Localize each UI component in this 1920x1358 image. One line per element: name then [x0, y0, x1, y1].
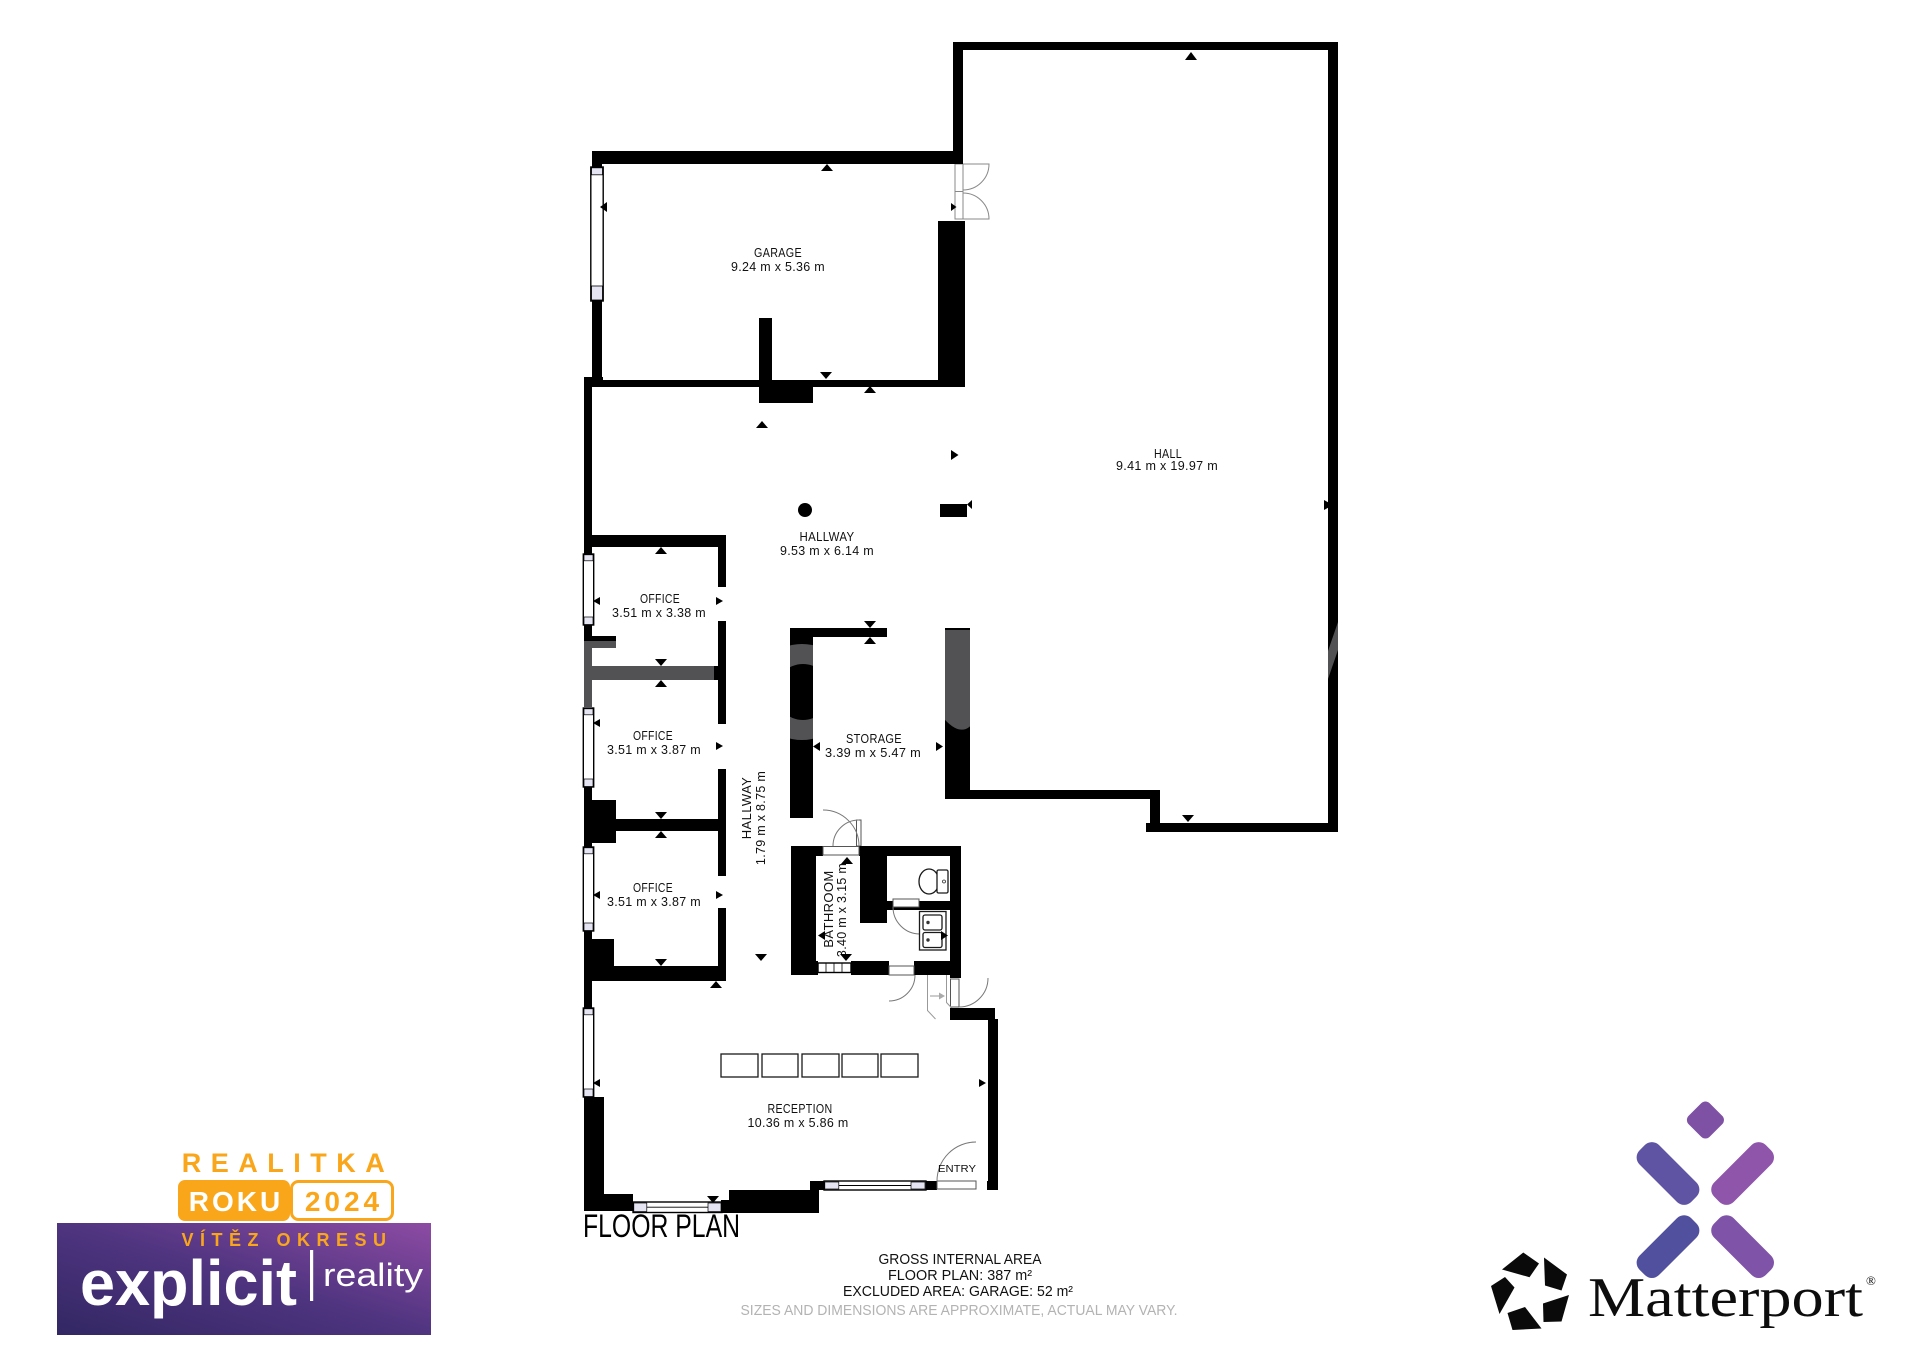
- svg-text:9.24 m x 5.36 m: 9.24 m x 5.36 m: [731, 260, 825, 274]
- svg-text:3.51 m x 3.87 m: 3.51 m x 3.87 m: [607, 743, 701, 757]
- svg-text:10.36 m x 5.86 m: 10.36 m x 5.86 m: [748, 1116, 849, 1130]
- svg-text:OFFICE: OFFICE: [640, 591, 680, 606]
- svg-text:HALLWAY: HALLWAY: [739, 777, 754, 840]
- svg-text:ENTRY: ENTRY: [938, 1163, 976, 1175]
- svg-text:®: ®: [1866, 1273, 1876, 1288]
- svg-text:OFFICE: OFFICE: [633, 728, 673, 743]
- svg-text:FLOOR PLAN: FLOOR PLAN: [583, 1208, 740, 1244]
- svg-text:reality: reality: [323, 1257, 423, 1293]
- svg-text:3.51 m x 3.38 m: 3.51 m x 3.38 m: [612, 606, 706, 620]
- svg-text:HALLWAY: HALLWAY: [800, 529, 855, 544]
- svg-text:RECEPTION: RECEPTION: [768, 1101, 833, 1116]
- svg-text:GROSS INTERNAL AREA: GROSS INTERNAL AREA: [879, 1252, 1042, 1268]
- svg-text:EXCLUDED AREA: GARAGE: 52 m²: EXCLUDED AREA: GARAGE: 52 m²: [843, 1284, 1073, 1300]
- svg-text:3.51 m x 3.87 m: 3.51 m x 3.87 m: [607, 895, 701, 909]
- svg-text:2024: 2024: [305, 1186, 383, 1217]
- svg-text:REALITKA: REALITKA: [182, 1148, 395, 1178]
- svg-text:1.79 m x 8.75 m: 1.79 m x 8.75 m: [754, 771, 768, 865]
- svg-text:9.53 m x 6.14 m: 9.53 m x 6.14 m: [780, 544, 874, 558]
- svg-text:ROKU: ROKU: [189, 1186, 283, 1217]
- svg-text:explicit: explicit: [80, 1247, 297, 1319]
- svg-text:9.41 m x 19.97 m: 9.41 m x 19.97 m: [1116, 459, 1218, 473]
- svg-text:GARAGE: GARAGE: [754, 245, 802, 260]
- svg-text:Matterport: Matterport: [1588, 1267, 1863, 1329]
- svg-text:STORAGE: STORAGE: [846, 731, 902, 746]
- svg-text:3.40 m x 3.15 m: 3.40 m x 3.15 m: [835, 863, 849, 957]
- svg-text:3.39 m x 5.47 m: 3.39 m x 5.47 m: [825, 746, 921, 760]
- svg-text:FLOOR PLAN: 387 m²: FLOOR PLAN: 387 m²: [888, 1268, 1032, 1284]
- svg-text:SIZES AND DIMENSIONS ARE APPRO: SIZES AND DIMENSIONS ARE APPROXIMATE, AC…: [741, 1303, 1178, 1319]
- svg-text:OFFICE: OFFICE: [633, 880, 673, 895]
